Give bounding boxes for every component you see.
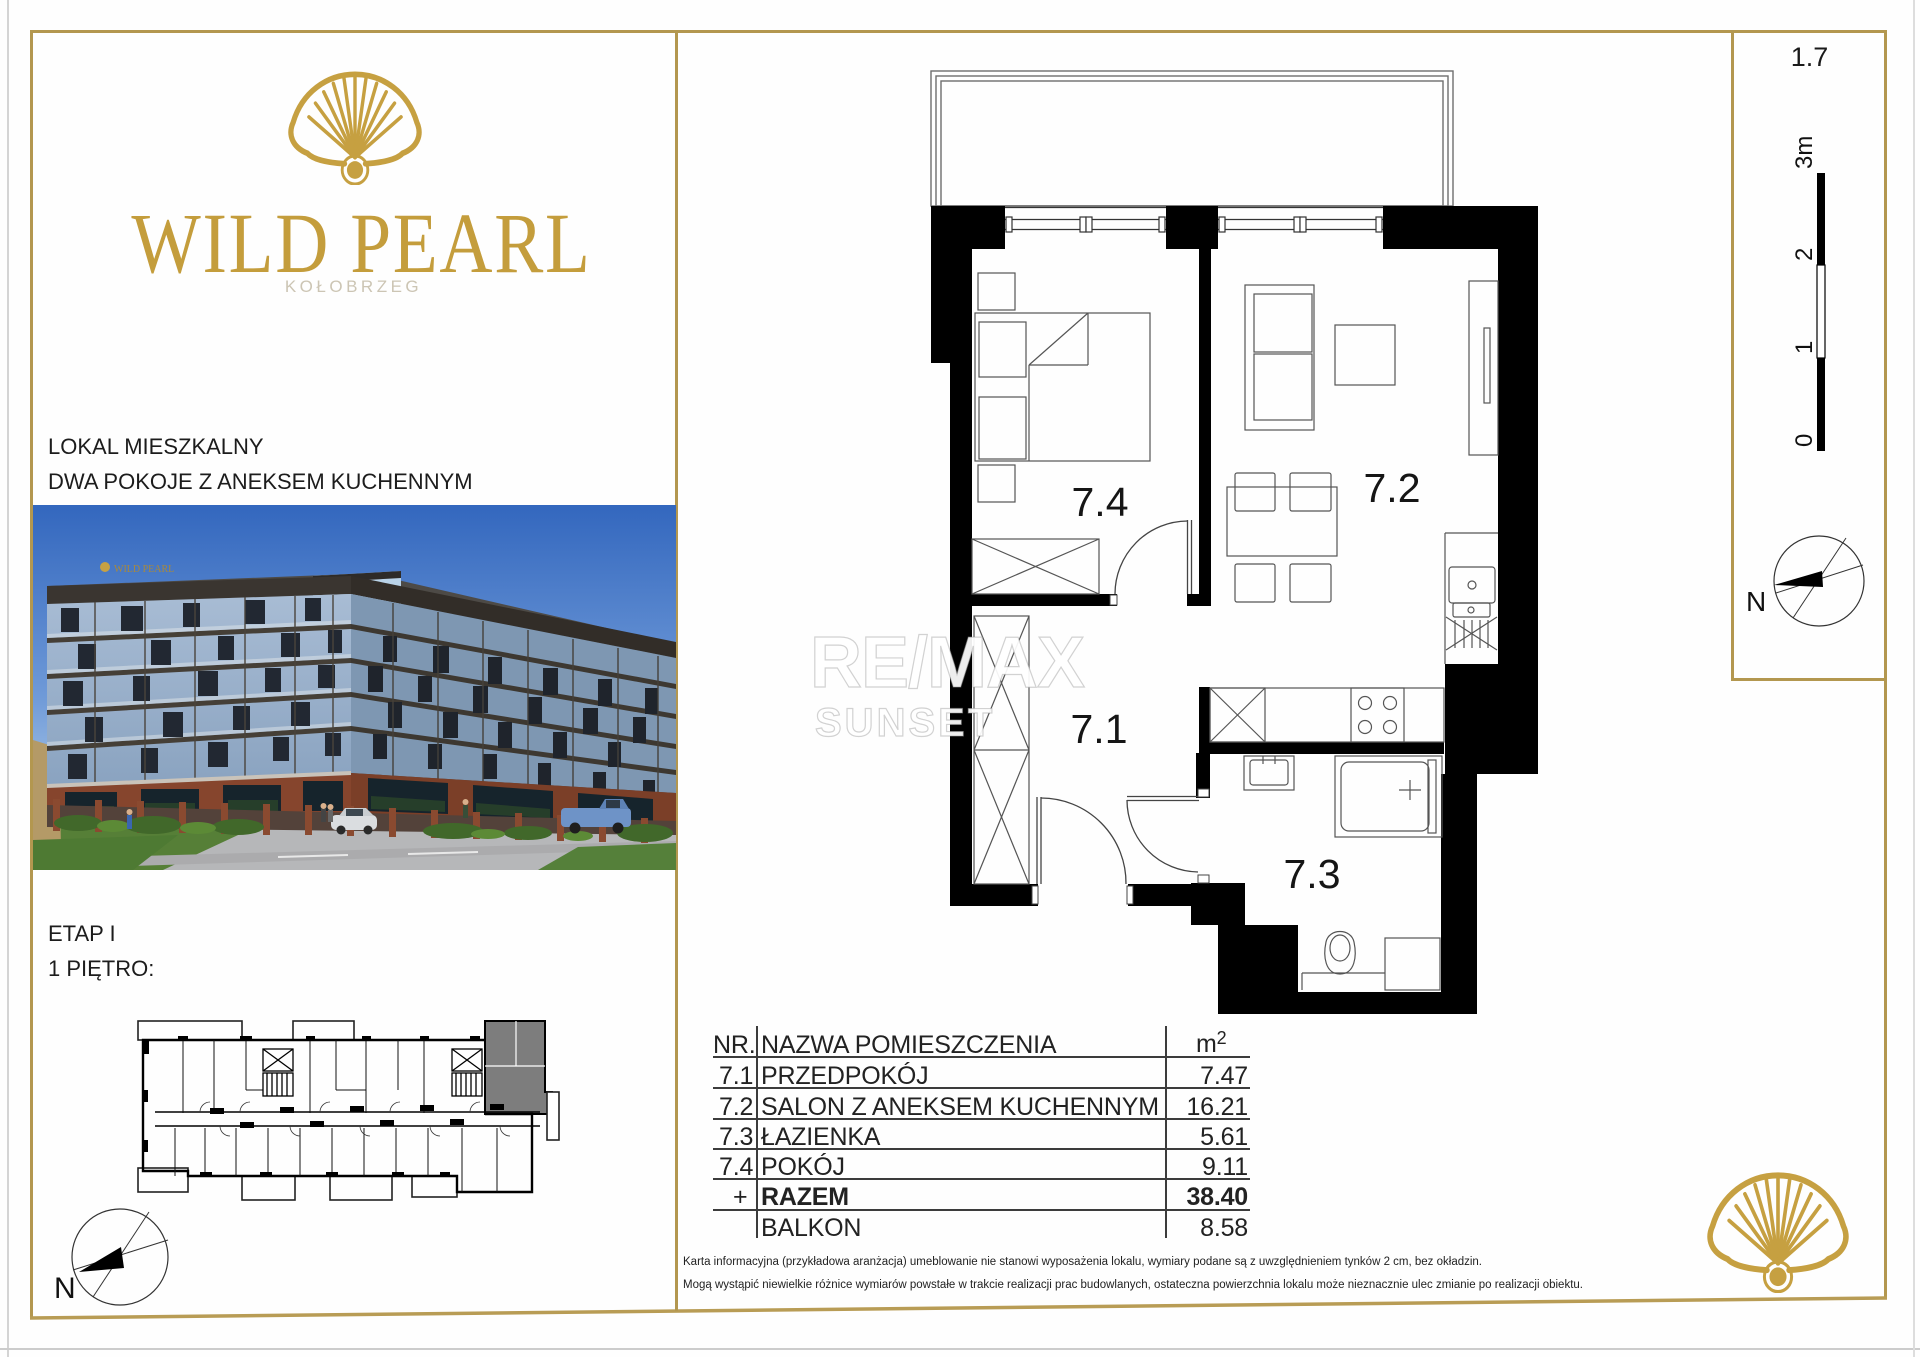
svg-text:N: N: [1746, 586, 1766, 617]
svg-text:1: 1: [1791, 341, 1818, 354]
svg-text:7.1: 7.1: [1071, 706, 1128, 752]
svg-text:WILD PEARL: WILD PEARL: [114, 564, 174, 575]
svg-text:2: 2: [1791, 248, 1818, 261]
svg-text:7.3: 7.3: [1284, 851, 1341, 897]
svg-text:7.2: 7.2: [1364, 465, 1421, 511]
svg-text:N: N: [54, 1272, 76, 1305]
svg-text:0: 0: [1791, 434, 1818, 447]
svg-text:3m: 3m: [1791, 136, 1818, 169]
svg-text:7.4: 7.4: [1072, 479, 1129, 525]
